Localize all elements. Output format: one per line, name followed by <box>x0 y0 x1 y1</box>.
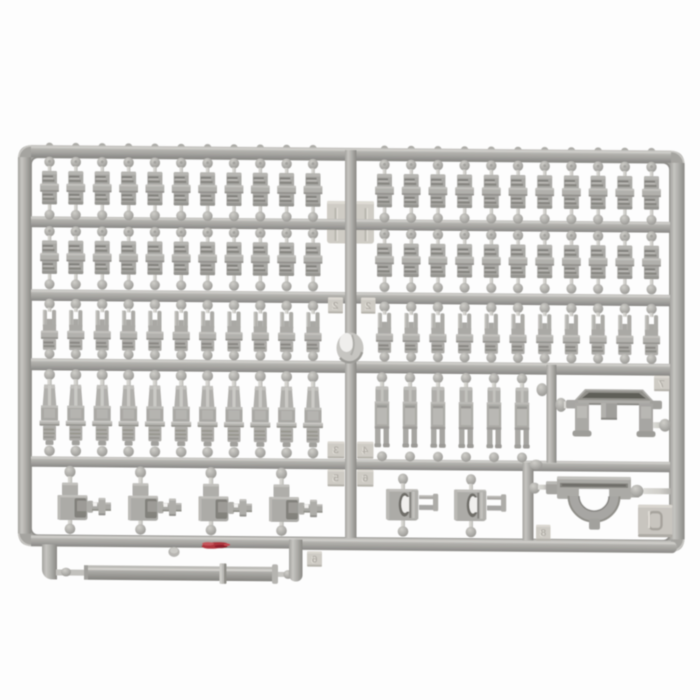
svg-text:4: 4 <box>362 445 368 457</box>
svg-text:7: 7 <box>659 378 665 390</box>
svg-text:6: 6 <box>311 554 317 566</box>
svg-text:3: 3 <box>333 444 339 456</box>
svg-text:2: 2 <box>365 300 371 312</box>
svg-text:8: 8 <box>540 527 546 539</box>
svg-text:2: 2 <box>332 300 338 312</box>
svg-text:5: 5 <box>333 472 339 484</box>
svg-text:6: 6 <box>362 473 368 485</box>
